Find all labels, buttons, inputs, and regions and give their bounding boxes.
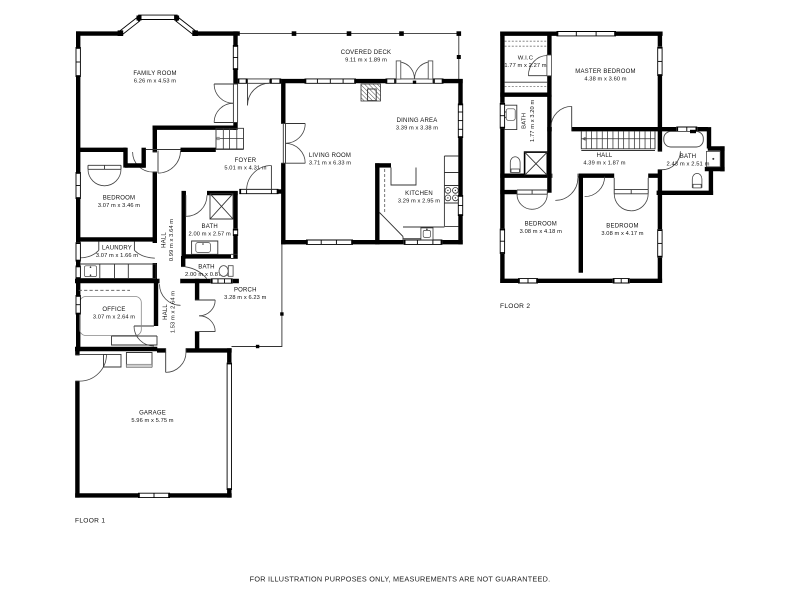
svg-text:GARAGE: GARAGE bbox=[139, 411, 166, 417]
svg-text:BEDROOM: BEDROOM bbox=[606, 224, 638, 230]
svg-text:1.77 m x 2.27 m: 1.77 m x 2.27 m bbox=[504, 63, 546, 69]
svg-text:PORCH: PORCH bbox=[234, 288, 257, 294]
svg-text:BATH: BATH bbox=[680, 153, 697, 160]
svg-text:2.00 m x 2.57 m: 2.00 m x 2.57 m bbox=[189, 231, 231, 237]
svg-text:OFFICE: OFFICE bbox=[102, 307, 125, 313]
svg-text:3.08 m x 4.17 m: 3.08 m x 4.17 m bbox=[601, 231, 643, 237]
svg-text:FLOOR 2: FLOOR 2 bbox=[500, 303, 530, 310]
svg-text:5.96 m x 5.75 m: 5.96 m x 5.75 m bbox=[131, 418, 173, 424]
svg-text:BATH: BATH bbox=[202, 224, 218, 230]
svg-text:KITCHEN: KITCHEN bbox=[405, 191, 433, 197]
svg-text:1.77 m x 3.20 m: 1.77 m x 3.20 m bbox=[530, 99, 536, 141]
svg-text:3.28 m x 6.23 m: 3.28 m x 6.23 m bbox=[224, 295, 266, 301]
svg-text:9.11 m x 1.89 m: 9.11 m x 1.89 m bbox=[345, 57, 387, 63]
svg-text:LAUNDRY: LAUNDRY bbox=[102, 246, 132, 252]
svg-text:3.29 m x 2.95 m: 3.29 m x 2.95 m bbox=[398, 198, 440, 204]
svg-text:2.43 m x 2.51 m: 2.43 m x 2.51 m bbox=[666, 161, 709, 167]
svg-text:COVERED DECK: COVERED DECK bbox=[341, 50, 391, 56]
svg-text:BATH: BATH bbox=[198, 264, 215, 271]
svg-text:BEDROOM: BEDROOM bbox=[525, 222, 557, 228]
svg-text:1.53 m x 2.64 m: 1.53 m x 2.64 m bbox=[171, 291, 177, 333]
svg-text:3.07 m x 3.46 m: 3.07 m x 3.46 m bbox=[98, 203, 140, 209]
svg-text:4.38 m x 3.60 m: 4.38 m x 3.60 m bbox=[584, 76, 626, 82]
svg-text:FAMILY ROOM: FAMILY ROOM bbox=[133, 71, 176, 77]
svg-text:3.71 m x 6.33 m: 3.71 m x 6.33 m bbox=[309, 160, 351, 166]
svg-text:HALL: HALL bbox=[597, 153, 613, 159]
svg-text:FOYER: FOYER bbox=[235, 158, 257, 164]
svg-text:LIVING ROOM: LIVING ROOM bbox=[309, 153, 351, 159]
svg-text:3.07 m x 1.66 m: 3.07 m x 1.66 m bbox=[96, 253, 138, 259]
svg-text:6.26 m x 4.53 m: 6.26 m x 4.53 m bbox=[134, 78, 176, 84]
svg-text:HALL: HALL bbox=[163, 304, 169, 320]
svg-text:FLOOR 1: FLOOR 1 bbox=[75, 518, 105, 525]
svg-text:BEDROOM: BEDROOM bbox=[103, 196, 135, 202]
svg-text:4.39 m x 1.87 m: 4.39 m x 1.87 m bbox=[583, 160, 625, 166]
svg-text:3.08 m x 4.18 m: 3.08 m x 4.18 m bbox=[520, 229, 562, 235]
svg-text:0.99 m x 3.64 m: 0.99 m x 3.64 m bbox=[169, 219, 175, 261]
svg-text:3.39 m x 3.38 m: 3.39 m x 3.38 m bbox=[396, 125, 438, 131]
svg-text:MASTER BEDROOM: MASTER BEDROOM bbox=[575, 69, 635, 75]
svg-text:HALL: HALL bbox=[162, 232, 168, 248]
svg-text:W.I.C: W.I.C bbox=[518, 56, 534, 62]
svg-text:BATH: BATH bbox=[522, 113, 528, 129]
svg-text:FOR ILLUSTRATION PURPOSES ONLY: FOR ILLUSTRATION PURPOSES ONLY, MEASUREM… bbox=[250, 575, 551, 584]
svg-text:DINING AREA: DINING AREA bbox=[397, 118, 438, 124]
svg-text:3.07 m x 2.64 m: 3.07 m x 2.64 m bbox=[93, 314, 135, 320]
